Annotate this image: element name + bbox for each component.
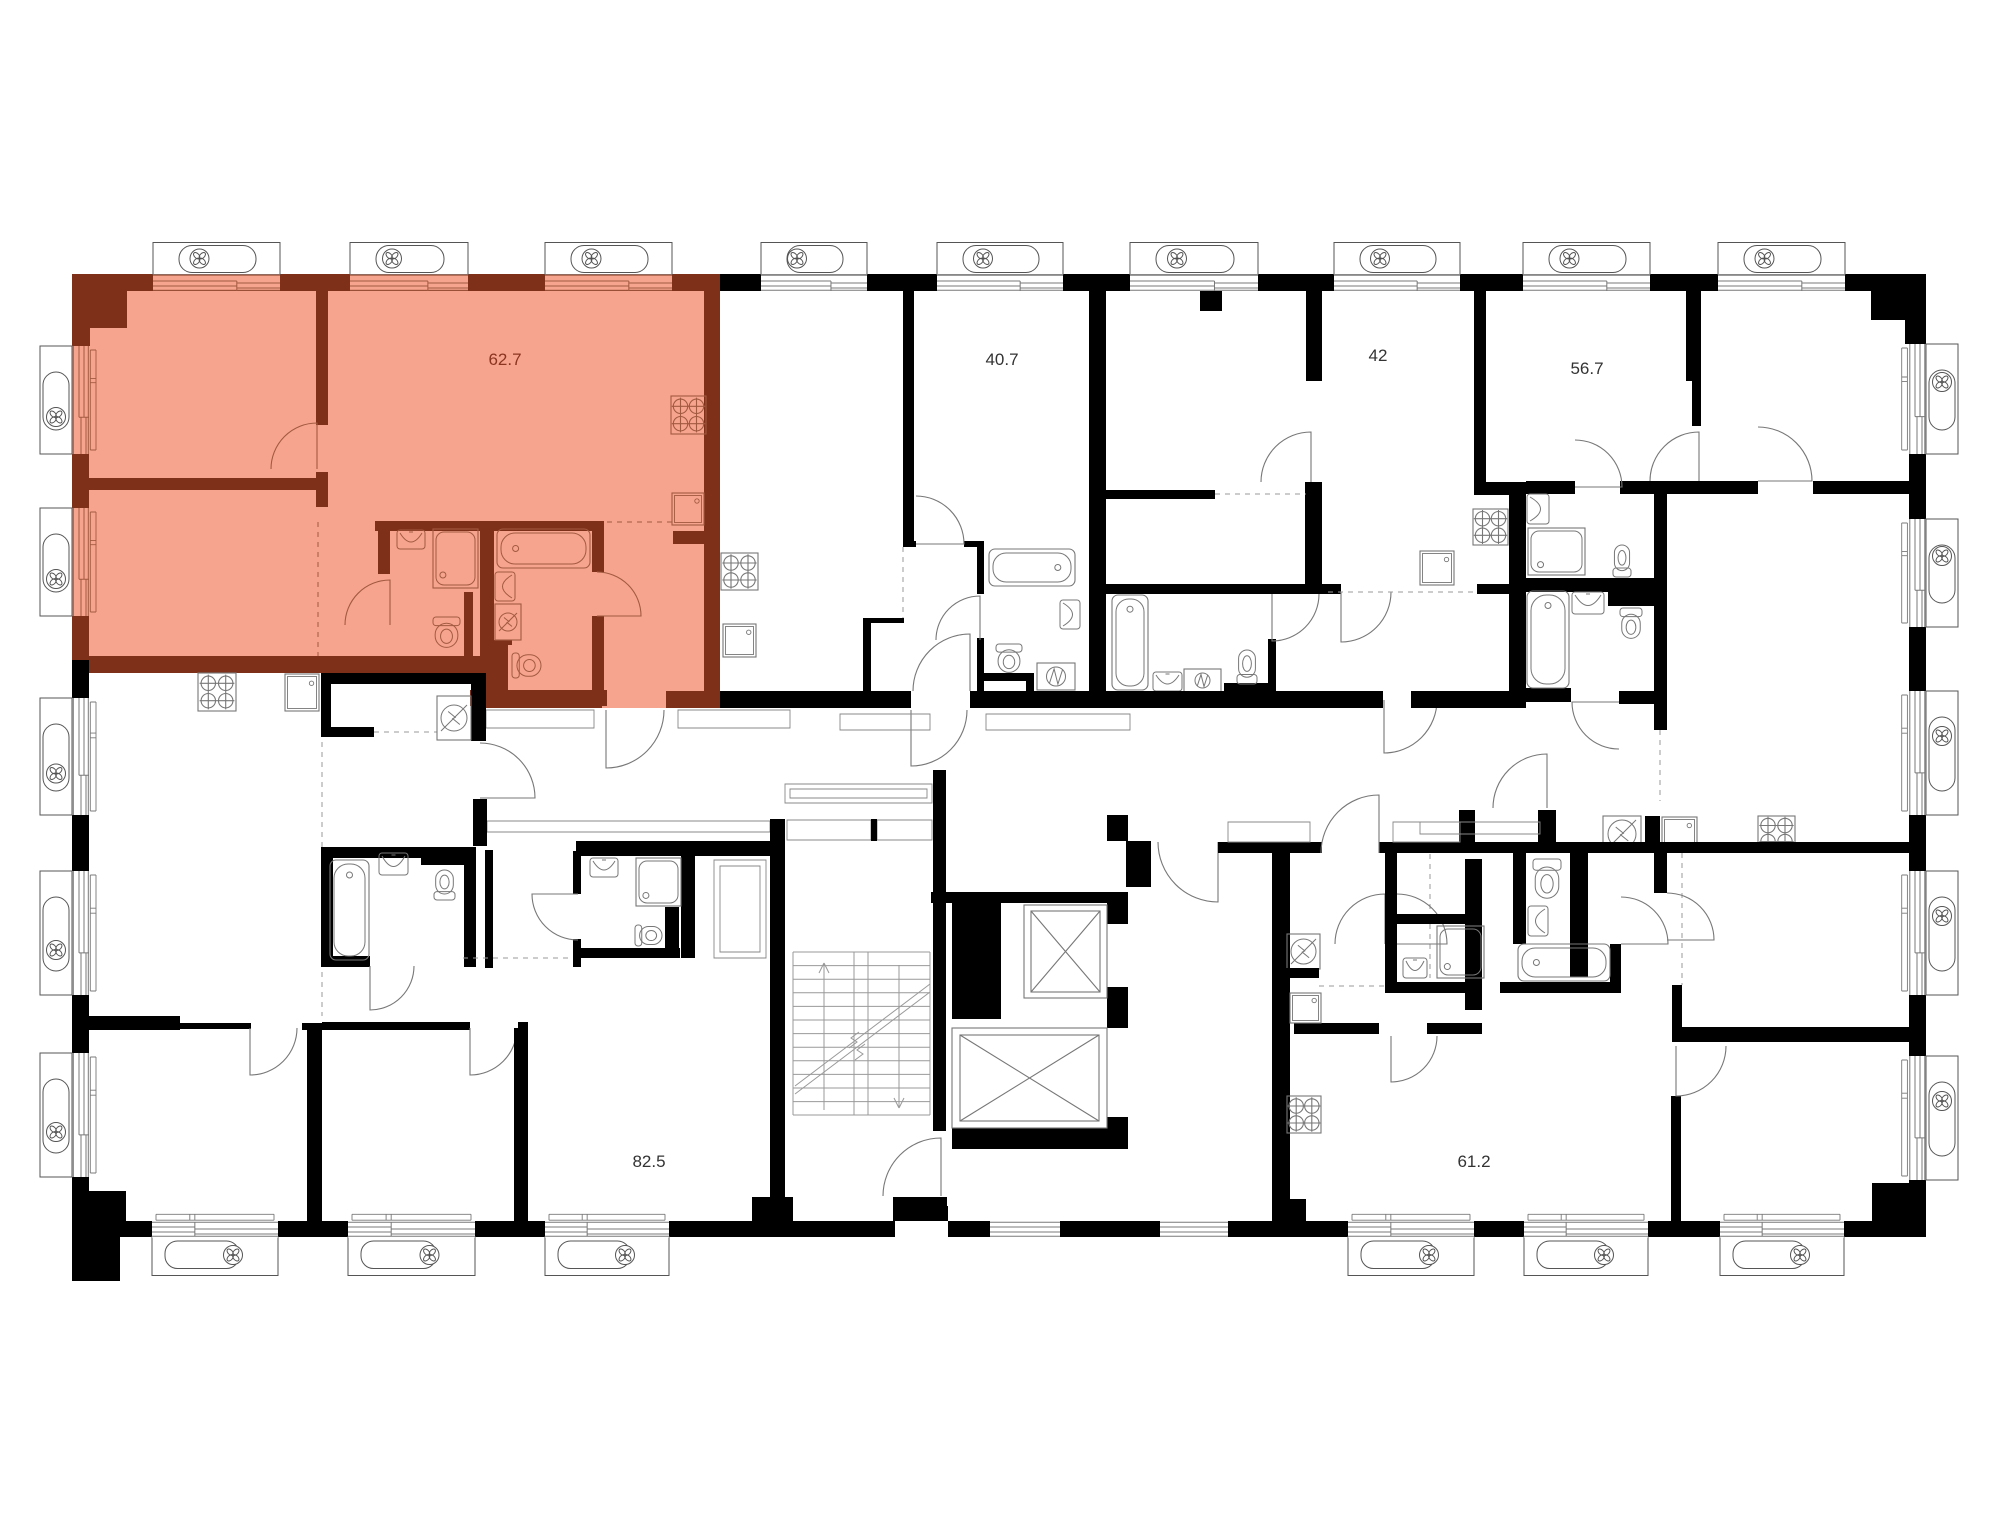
- svg-text:62.7: 62.7: [488, 350, 521, 369]
- svg-text:61.2: 61.2: [1457, 1152, 1490, 1171]
- svg-text:40.7: 40.7: [985, 350, 1018, 369]
- svg-text:42: 42: [1369, 346, 1388, 365]
- svg-text:82.5: 82.5: [632, 1152, 665, 1171]
- svg-text:56.7: 56.7: [1570, 359, 1603, 378]
